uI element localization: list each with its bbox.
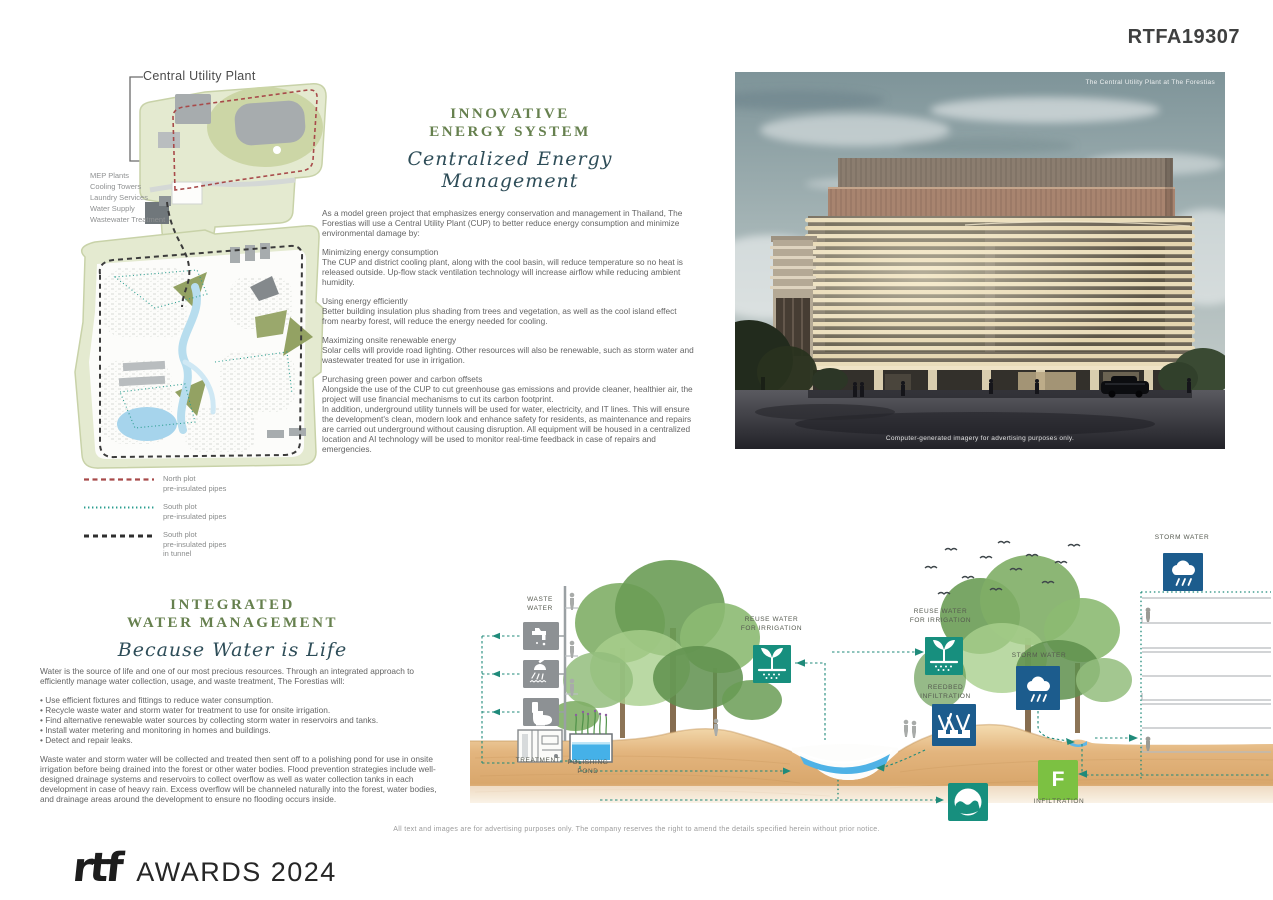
energy-title-line1: INNOVATIVE <box>340 105 680 123</box>
legend-row: South plot pre-insulated pipes <box>84 502 274 521</box>
rtf-awards-logo: rtf AWARDS 2024 <box>73 848 337 888</box>
energy-body: As a model green project that emphasizes… <box>322 208 694 463</box>
facility-item: Wastewater Treatment <box>90 214 165 225</box>
label-reuse-water-2: REUSE WATER FOR IRRIGATION <box>898 608 983 625</box>
label-waste-water: WASTE WATER <box>505 596 575 613</box>
water-outro: Waste water and storm water will be coll… <box>40 754 438 804</box>
water-intro: Water is the source of life and one of o… <box>40 666 438 686</box>
building-render-image <box>735 72 1225 449</box>
board-id: RTFA19307 <box>1128 26 1240 49</box>
label-polishing-pond: POLISHING POND <box>550 759 626 776</box>
site-plan-map <box>55 62 345 480</box>
forest-left <box>551 560 782 738</box>
reedbed-infiltration-box <box>932 704 976 746</box>
rtf-logo: rtf <box>71 848 122 888</box>
storm-water-box-mid <box>1016 666 1060 710</box>
storm-water-box-top <box>1163 553 1203 591</box>
infiltration-f-letter: F <box>1038 760 1078 800</box>
water-bullet: • Detect and repair leaks. <box>40 735 438 745</box>
water-subtitle: Because Water is Life <box>45 639 420 661</box>
building-section <box>1142 598 1271 752</box>
water-bullet: • Recycle waste water and storm water fo… <box>40 705 438 715</box>
water-bullet: • Use efficient fixtures and fittings to… <box>40 695 438 705</box>
energy-section-body: Alongside the use of the CUP to cut gree… <box>322 384 693 454</box>
pond <box>117 407 177 441</box>
label-reuse-water-1: REUSE WATER FOR IRRIGATION <box>729 616 814 633</box>
red-dashed-line-sample <box>84 477 154 482</box>
energy-section: Minimizing energy consumptionThe CUP and… <box>322 247 694 287</box>
water-title-line1: INTEGRATED <box>45 596 420 614</box>
building-render: The Central Utility Plant at The Foresti… <box>735 72 1225 449</box>
energy-section: Using energy efficientlyBetter building … <box>322 296 694 326</box>
disclaimer: All text and images are for advertising … <box>0 826 1273 833</box>
water-bullet: • Install water metering and monitoring … <box>40 725 438 735</box>
energy-intro: As a model green project that emphasizes… <box>322 208 694 238</box>
label-reedbed: REEDBED INFILTRATION <box>903 684 988 701</box>
energy-section-body: Solar cells will provide road lighting. … <box>322 345 694 365</box>
energy-section-heading: Maximizing onsite renewable energy <box>322 335 694 345</box>
reuse-irrigation-box-1 <box>753 645 791 683</box>
energy-section-body: Better building insulation plus shading … <box>322 306 677 326</box>
legend-row: North plot pre-insulated pipes <box>84 474 274 493</box>
facility-item: Water Supply <box>90 203 165 214</box>
label-storm-water-mid: STORM WATER <box>994 652 1084 661</box>
energy-section-heading: Minimizing energy consumption <box>322 247 694 257</box>
energy-section: Maximizing onsite renewable energySolar … <box>322 335 694 365</box>
awards-2024-text: AWARDS 2024 <box>136 857 337 888</box>
facility-item: MEP Plants <box>90 170 165 181</box>
render-caption-bottom: Computer-generated imagery for advertisi… <box>735 435 1225 442</box>
facility-item: Cooling Towers <box>90 181 165 192</box>
render-caption-top: The Central Utility Plant at The Foresti… <box>1085 79 1215 86</box>
water-diagram <box>470 528 1273 828</box>
teal-dotted-line-sample <box>84 505 154 510</box>
water-title-line2: WATER MANAGEMENT <box>45 614 420 632</box>
energy-subtitle: Centralized Energy Management <box>340 148 680 192</box>
pipes-legend: North plot pre-insulated pipes South plo… <box>84 474 274 568</box>
black-dashed-line-sample <box>84 533 154 539</box>
energy-section-heading: Purchasing green power and carbon offset… <box>322 374 694 384</box>
energy-title-line2: ENERGY SYSTEM <box>340 123 680 141</box>
awards-board: RTFA19307 Central Utility Plant <box>0 0 1273 900</box>
energy-section-body: The CUP and district cooling plant, alon… <box>322 257 683 287</box>
label-storm-water-top: STORM WATER <box>1137 534 1227 543</box>
energy-section: Purchasing green power and carbon offset… <box>322 374 694 454</box>
legend-label: South plot pre-insulated pipes <box>163 502 226 521</box>
fixture-boxes <box>523 622 559 726</box>
facility-list: MEP Plants Cooling Towers Laundry Servic… <box>90 170 165 225</box>
legend-label: South plot pre-insulated pipes in tunnel <box>163 530 226 559</box>
energy-section-heading: Using energy efficiently <box>322 296 694 306</box>
water-bullet: • Find alternative renewable water sourc… <box>40 715 438 725</box>
legend-row: South plot pre-insulated pipes in tunnel <box>84 530 274 559</box>
water-body: Water is the source of life and one of o… <box>40 666 438 813</box>
facility-item: Laundry Services <box>90 192 165 203</box>
energy-heading: INNOVATIVE ENERGY SYSTEM Centralized Ene… <box>340 105 680 192</box>
legend-label: North plot pre-insulated pipes <box>163 474 226 493</box>
water-heading: INTEGRATED WATER MANAGEMENT Because Wate… <box>45 596 420 661</box>
reuse-irrigation-box-2 <box>925 637 963 675</box>
